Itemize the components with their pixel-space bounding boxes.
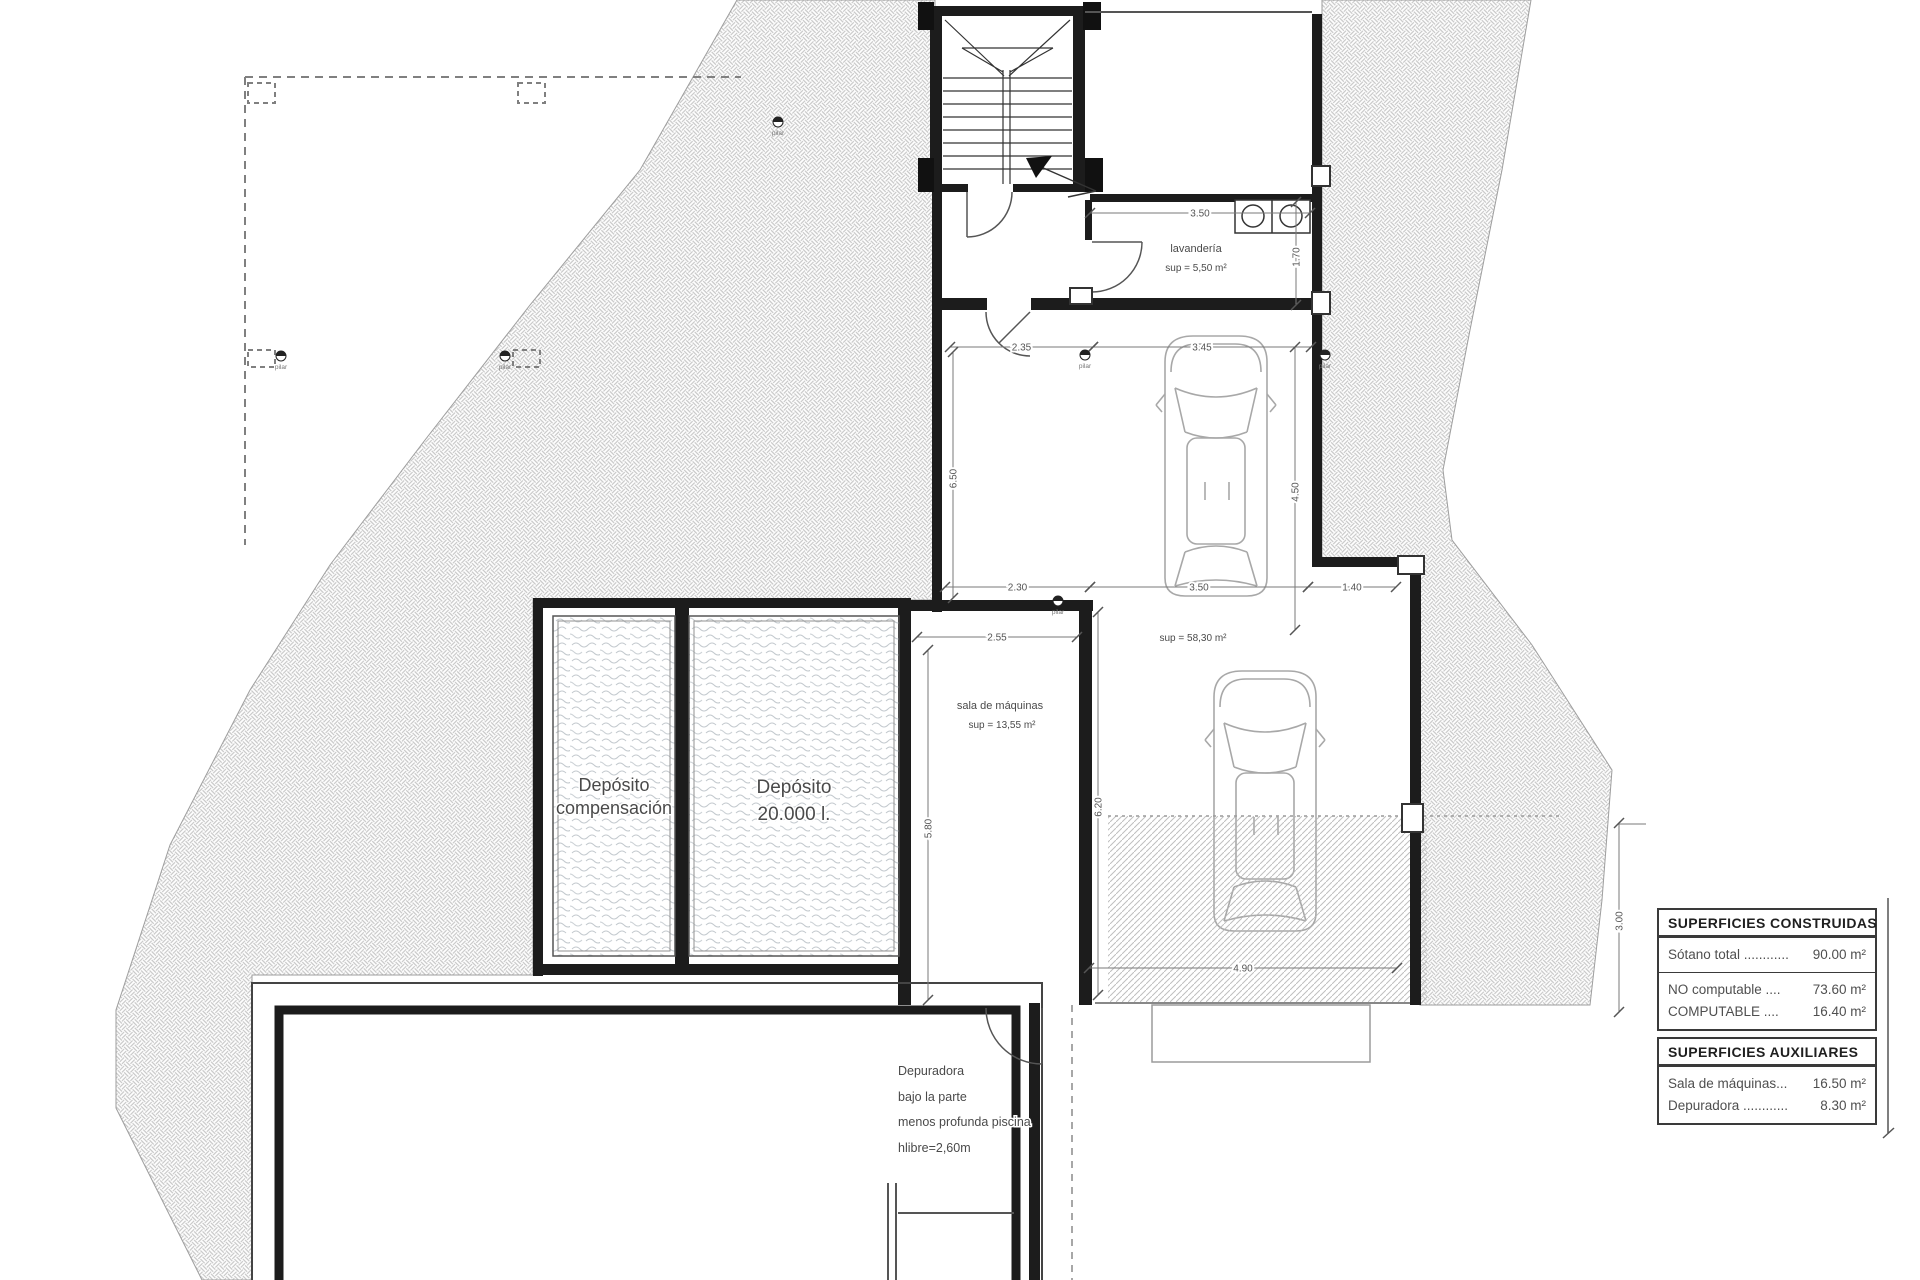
dimension: 3.50 (1085, 582, 1313, 594)
dimension-value: 5.80 (924, 818, 935, 838)
depuradora-note-line: hlibre=2,60m (898, 1141, 971, 1155)
dimension-value: 3.50 (1189, 583, 1209, 594)
dimension-value: 1.70 (1292, 247, 1303, 267)
legend-row-label: NO computable .... (1668, 979, 1781, 1001)
dimension: 2.30 (940, 582, 1095, 594)
depuradora-note-line: bajo la parte (898, 1090, 967, 1104)
dimension-value: 2.30 (1008, 583, 1028, 594)
legend-row-value: 90.00 m² (1813, 944, 1866, 966)
legend-row-label: Sótano total ............ (1668, 944, 1789, 966)
pilar-marker-label: pilar (499, 364, 512, 371)
legend-row-value: 73.60 m² (1813, 979, 1866, 1001)
reference-line (1883, 898, 1894, 1138)
dimension-value: 2.55 (987, 633, 1007, 644)
room-label: sup = 13,55 m² (969, 720, 1037, 731)
legend-table: SUPERFICIES AUXILIARESSala de máquinas..… (1657, 1037, 1877, 1125)
legend-group: Sala de máquinas...16.50 m²Depuradora ..… (1659, 1066, 1875, 1123)
dimension-value: 6.20 (1094, 797, 1105, 817)
dimension-value: 4.90 (1233, 964, 1253, 975)
depuradora-note-line: menos profunda piscina (898, 1115, 1031, 1129)
dimension: 3.45 (1088, 342, 1316, 354)
legend-row-value: 16.50 m² (1813, 1073, 1866, 1095)
legend-group: NO computable ....73.60 m²COMPUTABLE ...… (1659, 972, 1875, 1029)
legend-row: COMPUTABLE ....16.40 m² (1668, 1001, 1866, 1023)
legend-table-title: SUPERFICIES CONSTRUIDAS (1659, 910, 1875, 937)
pilar-marker-label: pilar (772, 130, 785, 137)
legend-row: NO computable ....73.60 m² (1668, 979, 1866, 1001)
dimension: 2.55 (912, 632, 1082, 644)
pilar-marker-label: pilar (275, 364, 288, 371)
legend-row: Sótano total ............90.00 m² (1668, 944, 1866, 966)
pilar-marker-label: pilar (1319, 363, 1332, 370)
pool-structure (252, 983, 1042, 1280)
stair-hall-door (967, 192, 1012, 237)
laundry-appliances (1235, 200, 1310, 233)
legend-table: SUPERFICIES CONSTRUIDASSótano total ....… (1657, 908, 1877, 1031)
dimension-value: 6.50 (949, 468, 960, 488)
dimension: 2.35 (945, 342, 1098, 354)
legend-row-label: COMPUTABLE .... (1668, 1001, 1779, 1023)
hall-laundry-door (1092, 242, 1142, 292)
room-label: Depósito (757, 777, 832, 798)
floor-plan-sheet: 3.501.702.353.456.504.502.303.501.402.55… (0, 0, 1920, 1280)
room-label: 20.000 l. (758, 804, 831, 825)
dimension: 3.00 (1614, 818, 1626, 1017)
pilar-marker-label: pilar (1052, 609, 1065, 616)
legend-row-label: Depuradora ............ (1668, 1095, 1788, 1117)
depuradora-note-line: Depuradora (898, 1064, 964, 1078)
dimension-value: 1.40 (1342, 583, 1362, 594)
dimension-value: 3.50 (1190, 209, 1210, 220)
dimension: 4.50 (1290, 342, 1302, 635)
pilar-marker: pilar (1079, 350, 1092, 370)
dimension-value: 2.35 (1012, 343, 1032, 354)
room-label: sup = 5,50 m² (1165, 263, 1227, 274)
legend-row: Sala de máquinas...16.50 m² (1668, 1073, 1866, 1095)
car-1 (1156, 336, 1276, 596)
legend-row-value: 8.30 m² (1820, 1095, 1866, 1117)
legend-row-label: Sala de máquinas... (1668, 1073, 1787, 1095)
basement-plan-drawing: 3.501.702.353.456.504.502.303.501.402.55… (0, 0, 1920, 1280)
dimension-value: 3.00 (1615, 911, 1626, 931)
legend-row-value: 16.40 m² (1813, 1001, 1866, 1023)
room-label: Depósito (578, 775, 649, 795)
dimension: 5.80 (923, 645, 935, 1005)
legend-row: Depuradora ............8.30 m² (1668, 1095, 1866, 1117)
room-label: sala de máquinas (957, 700, 1044, 712)
legend-group: Sótano total ............90.00 m² (1659, 937, 1875, 972)
room-label: lavandería (1170, 243, 1222, 255)
dimension: 6.20 (1093, 607, 1105, 1000)
room-label: compensación (556, 798, 672, 818)
dimension-value: 3.45 (1192, 343, 1212, 354)
legend-table-title: SUPERFICIES AUXILIARES (1659, 1039, 1875, 1066)
pilar-marker-label: pilar (1079, 363, 1092, 370)
room-label: sup = 58,30 m² (1160, 633, 1228, 644)
dimension-value: 4.50 (1291, 482, 1302, 502)
pilar-marker: pilar (275, 351, 288, 371)
dimension: 1.40 (1303, 582, 1401, 594)
dimension: 6.50 (948, 347, 960, 603)
